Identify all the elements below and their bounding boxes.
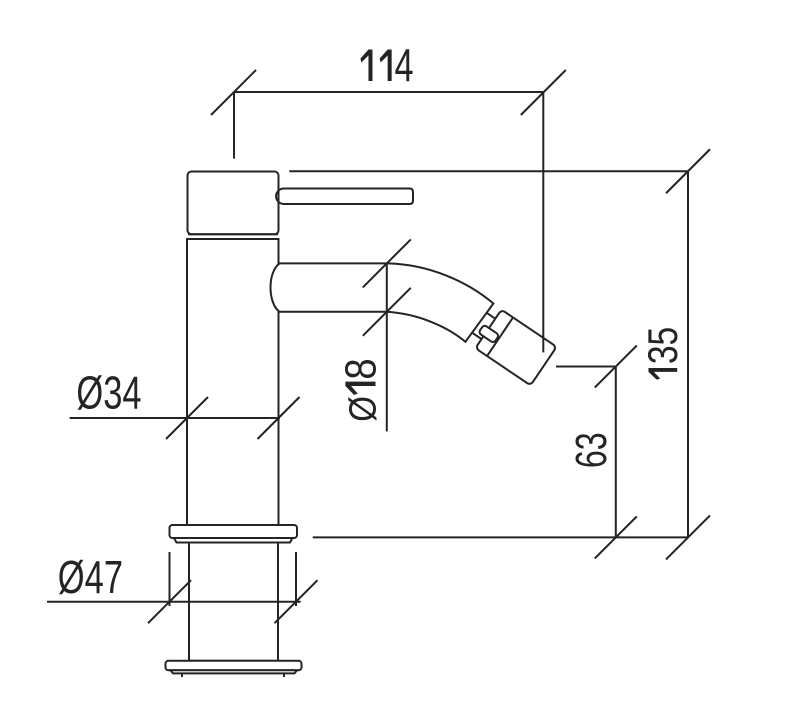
svg-text:Ø: Ø: [341, 396, 384, 422]
svg-text:63: 63: [567, 432, 616, 468]
svg-text:Ø34: Ø34: [76, 367, 141, 419]
svg-text:8: 8: [336, 358, 385, 379]
svg-text:Ø47: Ø47: [58, 551, 123, 603]
